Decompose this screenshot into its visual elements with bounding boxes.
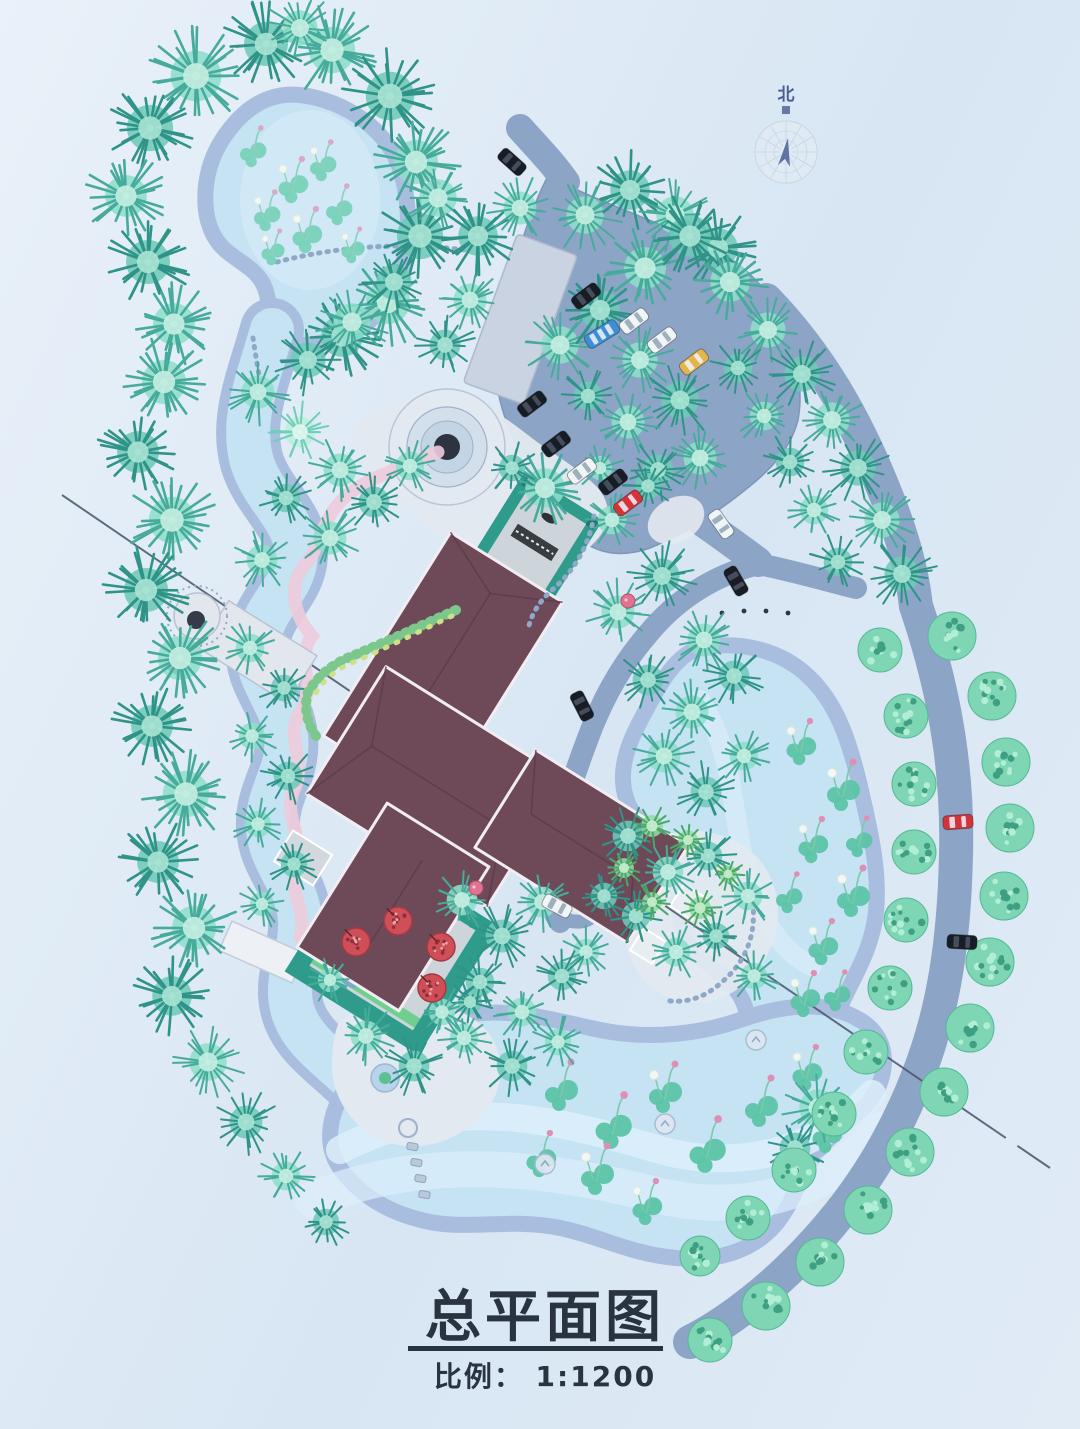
mini-flower-icon <box>621 594 635 608</box>
bush-icon <box>858 628 902 672</box>
tree-icon <box>217 1093 274 1155</box>
tree-icon <box>132 478 215 559</box>
bush-icon <box>892 830 936 874</box>
bush-icon <box>884 898 928 942</box>
bush-icon <box>812 1092 856 1136</box>
tree-icon <box>443 204 512 276</box>
tree-icon <box>136 282 210 363</box>
compass-mark <box>782 106 790 114</box>
tree-icon <box>415 316 475 372</box>
mini-flower-icon <box>469 881 483 895</box>
tree-icon <box>98 418 174 489</box>
tree-icon <box>152 891 235 967</box>
bush-icon <box>844 1030 888 1074</box>
bush-icon <box>986 804 1034 852</box>
tree-icon <box>173 1027 244 1097</box>
bush-icon <box>980 872 1028 920</box>
tree-icon <box>86 160 162 235</box>
title-block: 总平面图 比例： 1:1200 <box>408 1285 665 1393</box>
bush-icon <box>920 1068 968 1116</box>
bush-icon <box>844 1186 892 1234</box>
tree-icon <box>134 957 208 1035</box>
bush-icon <box>928 612 976 660</box>
car-icon <box>943 814 974 830</box>
bush-icon <box>892 762 936 806</box>
bush-icon <box>742 1282 790 1330</box>
bush-icon <box>968 672 1016 720</box>
entry-road <box>520 128 566 182</box>
tree-icon <box>119 824 198 901</box>
car-icon <box>947 934 978 950</box>
compass-north-label: 北 <box>778 85 795 105</box>
crosswalk-dots <box>720 609 791 616</box>
bush-icon <box>688 1318 732 1362</box>
tree-icon <box>124 339 205 416</box>
stone-icon <box>535 1154 555 1174</box>
stone-icon <box>655 1114 675 1134</box>
bush-icon <box>884 694 928 738</box>
site-plan-canvas: 北 总平面图 比例： 1:1200 <box>0 0 1080 1429</box>
plan-title: 总平面图 <box>425 1285 665 1350</box>
flower-tree-icon <box>342 928 370 956</box>
flower-tree-icon <box>418 974 446 1002</box>
fountain-plaza <box>389 389 505 505</box>
flower-tree-icon <box>427 933 455 961</box>
scale-label: 比例： 1:1200 <box>434 1360 656 1393</box>
bush-icon <box>772 1148 816 1192</box>
south-plaza-plant <box>379 1072 391 1084</box>
tree-icon <box>150 26 239 115</box>
bush-icon <box>886 1128 934 1176</box>
tree-icon <box>111 94 192 167</box>
bush-icon <box>982 738 1030 786</box>
bush-icon <box>796 1238 844 1286</box>
north-compass: 北 <box>755 85 817 183</box>
flower-tree-icon <box>384 907 412 935</box>
tree-icon <box>112 689 191 764</box>
stone-icon <box>746 1030 766 1050</box>
bush-icon <box>680 1236 720 1276</box>
title-underline <box>408 1346 663 1351</box>
bush-icon <box>868 966 912 1010</box>
tree-icon <box>142 750 224 835</box>
bush-icon <box>946 1004 994 1052</box>
tree-icon <box>109 221 189 299</box>
bush-icon <box>726 1196 770 1240</box>
